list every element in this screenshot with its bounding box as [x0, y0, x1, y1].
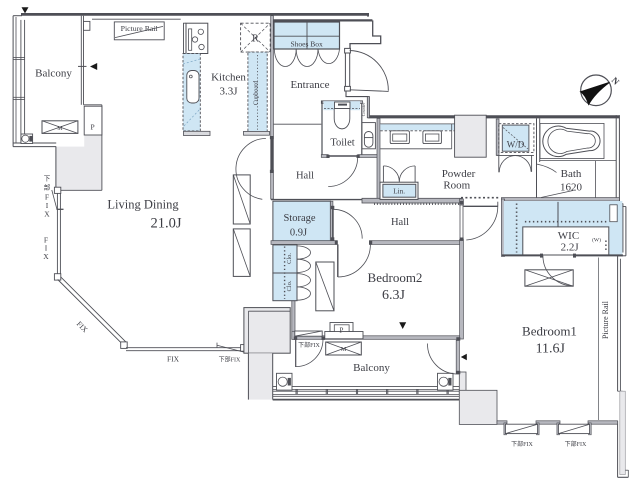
svg-text:Bedroom2: Bedroom2 — [368, 270, 423, 285]
svg-text:下部FIX: 下部FIX — [219, 356, 241, 364]
svg-text:M: M — [57, 126, 63, 132]
svg-text:W/D: W/D — [507, 140, 525, 150]
svg-text:21.0J: 21.0J — [150, 216, 181, 232]
svg-text:11.6J: 11.6J — [536, 342, 566, 357]
svg-text:Clo.: Clo. — [286, 280, 293, 291]
svg-text:M: M — [341, 347, 347, 353]
svg-text:Shoes Box: Shoes Box — [290, 39, 323, 48]
svg-text:Picture Rail: Picture Rail — [601, 300, 610, 339]
svg-text:FIX: FIX — [167, 355, 180, 364]
svg-text:下部FIX: 下部FIX — [298, 341, 320, 349]
svg-text:Powder: Powder — [442, 168, 476, 180]
svg-text:Cupboard: Cupboard — [253, 80, 260, 105]
svg-text:下: 下 — [44, 175, 51, 183]
svg-text:Hall: Hall — [296, 171, 314, 182]
svg-text:下部FIX: 下部FIX — [565, 440, 587, 448]
svg-text:Bedroom1: Bedroom1 — [522, 323, 577, 338]
svg-text:Balcony: Balcony — [35, 68, 72, 80]
svg-text:Toilet: Toilet — [330, 138, 354, 149]
svg-text:Room: Room — [443, 180, 470, 192]
svg-text:Hall: Hall — [391, 217, 409, 228]
svg-text:X: X — [43, 252, 49, 261]
svg-text:WIC: WIC — [558, 230, 579, 242]
svg-text:P: P — [340, 326, 344, 334]
svg-text:0.9J: 0.9J — [290, 228, 307, 239]
svg-text:(W): (W) — [592, 237, 601, 244]
svg-text:Clo.: Clo. — [286, 253, 293, 264]
svg-text:部: 部 — [44, 183, 51, 192]
svg-text:3.3J: 3.3J — [219, 86, 238, 98]
svg-text:Entrance: Entrance — [290, 79, 329, 91]
svg-text:Bath: Bath — [561, 168, 582, 180]
svg-text:X: X — [44, 210, 50, 219]
svg-text:1620: 1620 — [560, 181, 583, 193]
svg-text:6.3J: 6.3J — [382, 288, 406, 303]
svg-text:R: R — [252, 34, 259, 45]
svg-text:Balcony: Balcony — [353, 362, 390, 374]
svg-text:Storage: Storage — [283, 213, 315, 224]
svg-text:Lin.: Lin. — [393, 187, 405, 195]
svg-text:下部FIX: 下部FIX — [511, 440, 533, 448]
svg-text:2.2J: 2.2J — [561, 242, 580, 254]
svg-text:Kitchen: Kitchen — [211, 72, 246, 84]
svg-text:Living Dining: Living Dining — [107, 198, 179, 212]
svg-text:Counter: Counter — [361, 102, 366, 116]
svg-text:P: P — [91, 123, 95, 132]
